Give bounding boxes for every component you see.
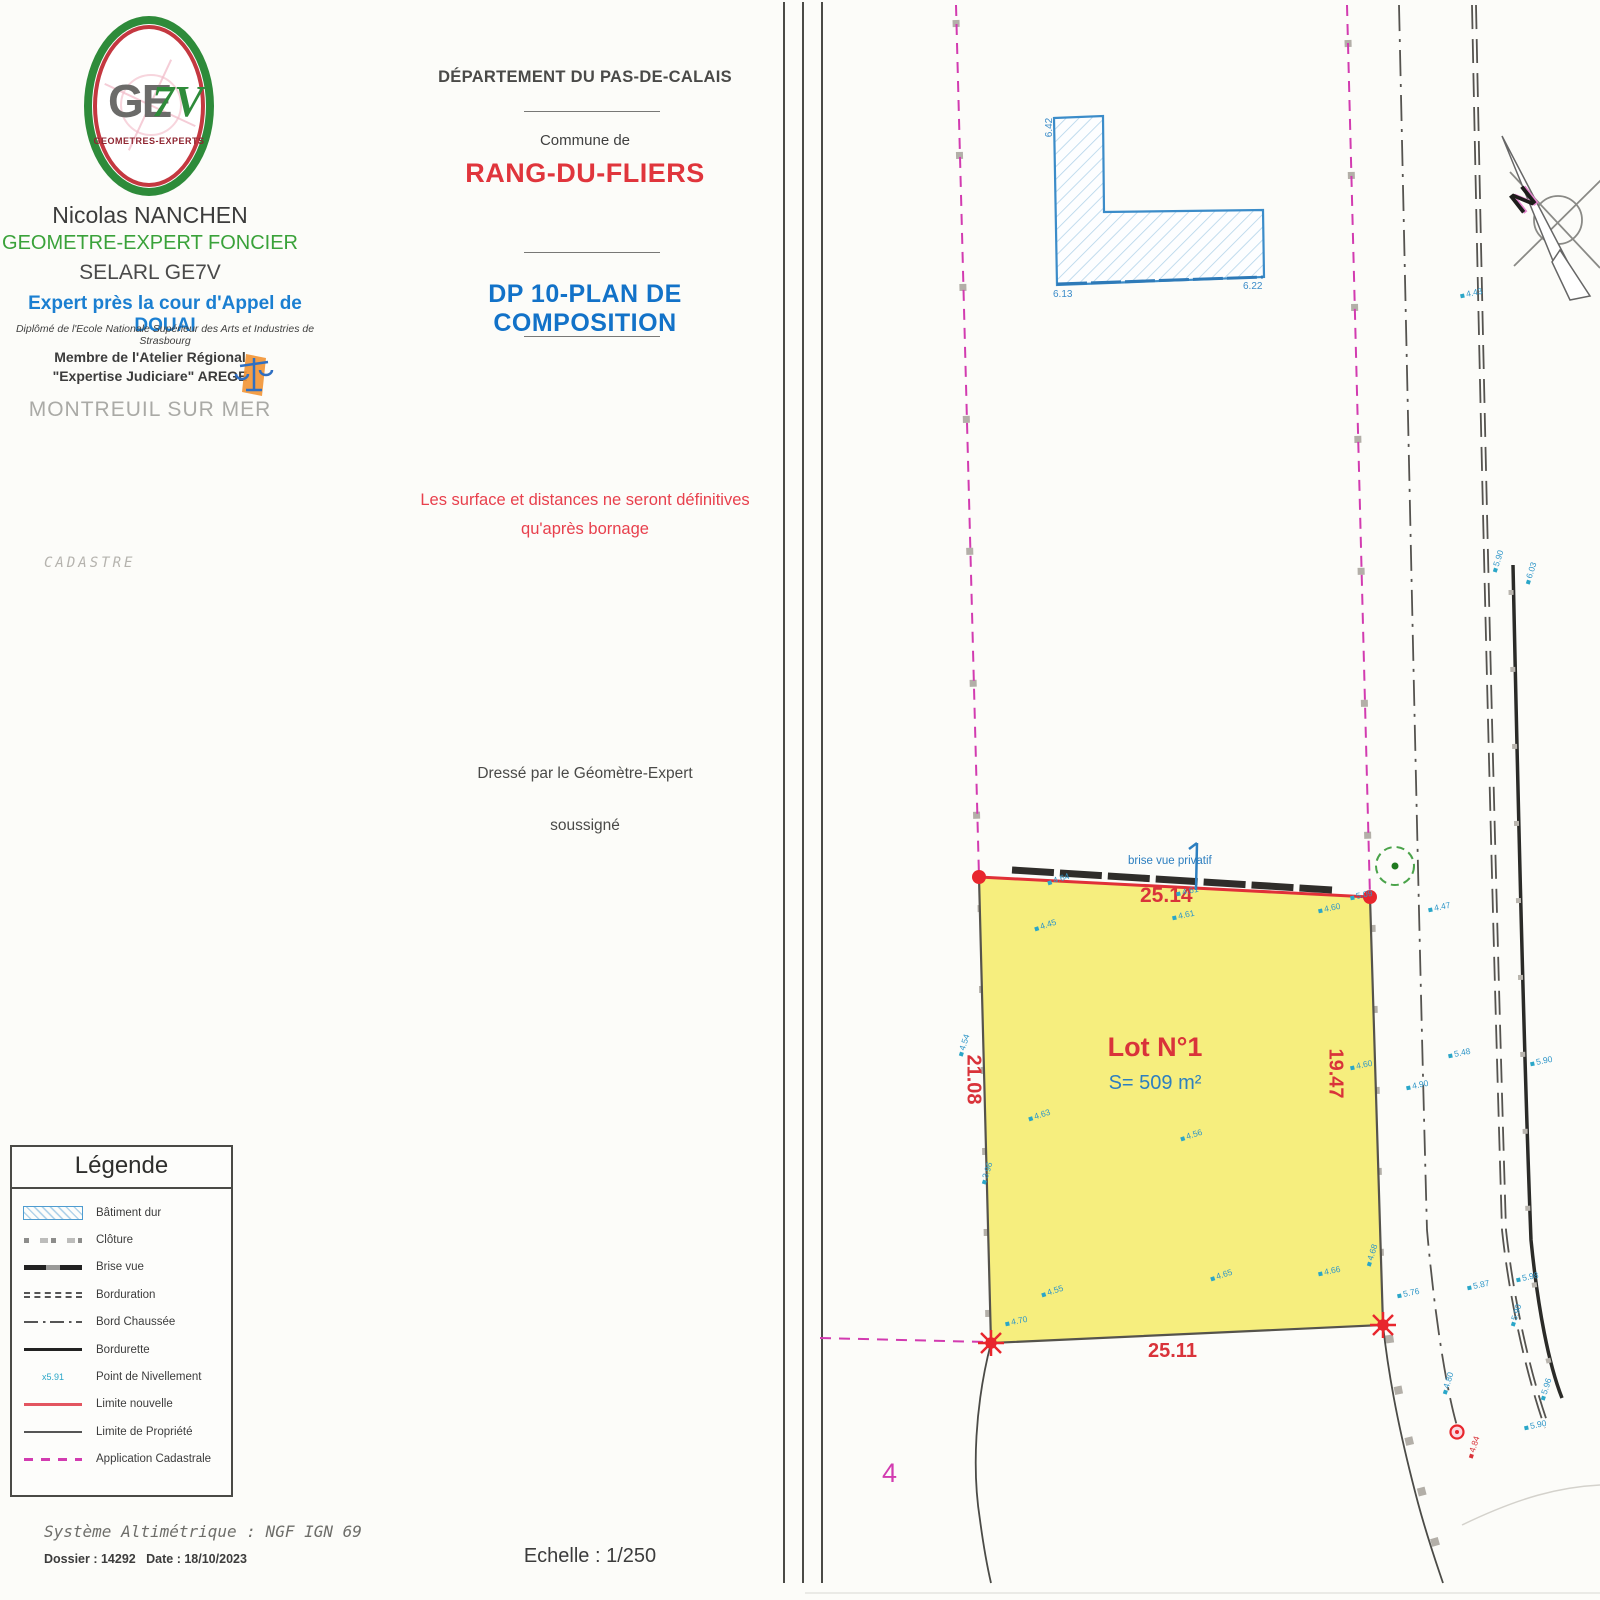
warning-line-1: Les surface et distances ne seront défin… bbox=[420, 491, 749, 509]
bord-chaussee-swatch bbox=[22, 1321, 84, 1323]
legend-item-bord-chaussee: Bord Chaussée bbox=[22, 1309, 231, 1336]
building-elev-bottom-left: 6.13 bbox=[1053, 289, 1072, 300]
plan-title: DP 10-PLAN DE COMPOSITION bbox=[400, 280, 770, 338]
road-edge-lines bbox=[784, 2, 822, 1583]
dossier-number: Dossier : 14292 bbox=[44, 1552, 136, 1566]
bord-chaussee-line bbox=[1399, 5, 1457, 1426]
building-elev-left: 6.42 bbox=[1044, 118, 1055, 137]
legend-item-bordurette: Bordurette bbox=[22, 1336, 231, 1363]
batiment-dur-swatch bbox=[22, 1206, 84, 1220]
parcel-number: 4 bbox=[882, 1458, 897, 1489]
scale-label: Echelle : 1/250 bbox=[480, 1545, 700, 1568]
legend-item-application-cadastrale: Application Cadastrale bbox=[22, 1446, 231, 1473]
building-batiment-dur bbox=[1054, 116, 1264, 285]
legend-rows: Bâtiment dur Clôture Brise vue Bordurati… bbox=[12, 1189, 231, 1473]
plan-sheet: GE 7V GEOMETRES-EXPERTS Nicolas NANCHEN … bbox=[0, 0, 1600, 1600]
bordurette-line bbox=[1513, 565, 1562, 1398]
arege-scales-icon bbox=[232, 352, 276, 398]
legend-item-point-de-nivellement: x5.91 Point de Nivellement bbox=[22, 1363, 231, 1390]
member-line-2: "Expertise Judiciare" AREGE bbox=[53, 368, 248, 384]
limite-nouvelle-swatch bbox=[22, 1403, 84, 1406]
ge7v-logo: GE 7V GEOMETRES-EXPERTS bbox=[84, 16, 214, 196]
lot-1-parcel bbox=[979, 877, 1383, 1343]
cadastre-label: CADASTRE bbox=[44, 555, 135, 571]
legend-item-limite-de-propriete: Limite de Propriété bbox=[22, 1418, 231, 1445]
borduration-swatch bbox=[22, 1292, 84, 1298]
point-de-nivellement-swatch: x5.91 bbox=[22, 1372, 84, 1382]
legend-title: Légende bbox=[12, 1147, 231, 1189]
legend-item-cloture: Clôture bbox=[22, 1226, 231, 1253]
brise-vue-label: brise vue privatif bbox=[1128, 855, 1212, 867]
limite-de-propriete-swatch bbox=[22, 1431, 84, 1433]
department-title: DÉPARTEMENT DU PAS-DE-CALAIS bbox=[420, 68, 750, 87]
parcel-boundaries bbox=[976, 1325, 1443, 1583]
logo-subtitle: GEOMETRES-EXPERTS bbox=[92, 136, 206, 146]
altimetric-system: Système Altimétrique : NGF IGN 69 bbox=[44, 1522, 362, 1541]
company-name: SELARL GE7V bbox=[0, 261, 300, 285]
drafted-line: Dressé par le Géomètre-Expert bbox=[420, 765, 750, 783]
legend-box: Légende Bâtiment dur Clôture Brise vue B… bbox=[10, 1145, 233, 1497]
legend-item-borduration: Borduration bbox=[22, 1281, 231, 1308]
legend-item-brise-vue: Brise vue bbox=[22, 1254, 231, 1281]
surveyor-name: Nicolas NANCHEN bbox=[0, 202, 300, 229]
divider bbox=[524, 111, 660, 112]
signed-line: soussigné bbox=[420, 817, 750, 835]
city-name: MONTREUIL SUR MER bbox=[0, 398, 300, 422]
red-ring-marker bbox=[1451, 1426, 1464, 1439]
warning-note: Les surface et distances ne seront défin… bbox=[420, 486, 750, 544]
bordurette-swatch bbox=[22, 1348, 84, 1351]
building-elev-bottom-right: 6.22 bbox=[1243, 281, 1262, 292]
lot-area: S= 509 m² bbox=[1095, 1072, 1215, 1095]
surveyor-title: GEOMETRE-EXPERT FONCIER bbox=[0, 232, 300, 255]
faint-curve bbox=[1462, 1485, 1600, 1525]
plan-date: Date : 18/10/2023 bbox=[146, 1552, 247, 1566]
legend-item-limite-nouvelle: Limite nouvelle bbox=[22, 1391, 231, 1418]
dossier-date-line: Dossier : 14292 Date : 18/10/2023 bbox=[44, 1552, 247, 1566]
dimension-bottom: 25.11 bbox=[1148, 1340, 1197, 1363]
lot-name: Lot N°1 bbox=[1095, 1032, 1215, 1063]
north-arrow-icon bbox=[1502, 136, 1600, 300]
dimension-right: 19.47 bbox=[1324, 1048, 1347, 1098]
commune-name: RANG-DU-FLIERS bbox=[420, 158, 750, 189]
commune-prefix: Commune de bbox=[420, 132, 750, 149]
dimension-left: 21.08 bbox=[962, 1054, 985, 1104]
tree-icon bbox=[1376, 847, 1414, 885]
brise-vue-swatch bbox=[22, 1265, 84, 1270]
warning-line-2: qu'après bornage bbox=[521, 520, 649, 538]
diploma-line: Diplômé de l'Ecole Nationale Supérieur d… bbox=[0, 323, 330, 347]
dimension-top: 25.14 bbox=[1140, 884, 1193, 908]
cloture-swatch bbox=[22, 1238, 84, 1243]
logo-7v-text: 7V bbox=[152, 76, 203, 127]
member-line-1: Membre de l'Atelier Régional bbox=[54, 349, 246, 365]
divider bbox=[524, 252, 660, 253]
legend-item-batiment-dur: Bâtiment dur bbox=[22, 1199, 231, 1226]
divider bbox=[524, 336, 660, 337]
application-cadastrale-swatch bbox=[22, 1458, 84, 1461]
